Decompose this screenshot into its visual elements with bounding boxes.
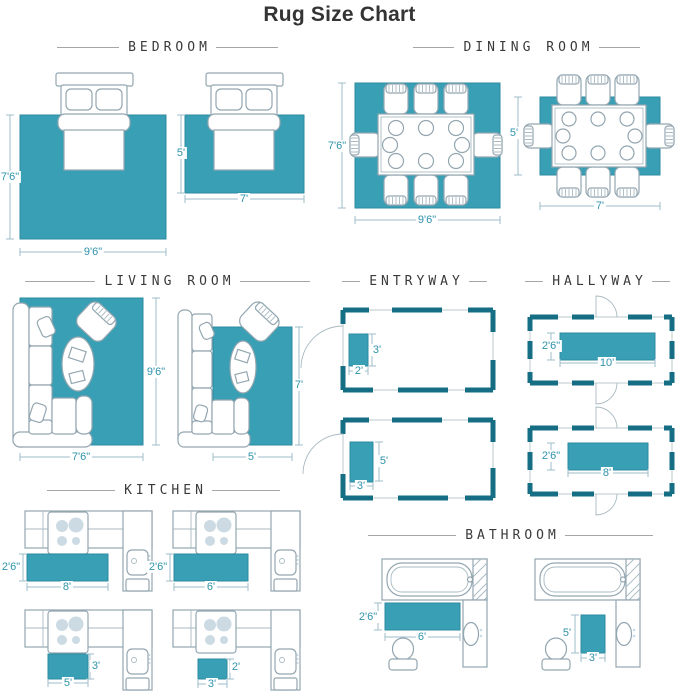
bedroom-rug1-width-label: 9'6" (82, 246, 104, 258)
dining-chair-icon (586, 167, 610, 197)
bedroom-rug1-height-label: 7'6" (0, 171, 21, 183)
rug (27, 554, 108, 581)
kitchen-rug3-width-label: 5' (62, 677, 74, 689)
entryway-rug2-width-label: 3' (355, 480, 367, 492)
hallway-rug1-height-label: 2'6" (540, 340, 562, 352)
rug (174, 554, 248, 581)
kitchen-rug4-width-label: 3' (206, 678, 218, 690)
dining-rug2-height-label: 5' (508, 127, 520, 139)
hallway-rug1-width-label: 10' (598, 357, 616, 369)
dining-room-diagram (338, 75, 674, 224)
rug (48, 654, 88, 679)
dining-chair-icon (444, 84, 468, 114)
coffee-table (230, 341, 256, 393)
bathroom-rug1-height-label: 2'6" (357, 611, 379, 623)
rug (568, 443, 648, 470)
kitchen-rug3-height-label: 3' (90, 660, 102, 672)
dining-chair-icon (384, 175, 408, 205)
dining-chair-icon (384, 84, 408, 114)
living-room-diagram (13, 298, 303, 461)
dining-rug1-width-label: 9'6" (416, 214, 438, 226)
kitchen-rug1-height-label: 2'6" (0, 561, 22, 573)
dining-chair-icon (615, 167, 639, 197)
dining-chair-icon (472, 133, 502, 157)
hallway-rug2-width-label: 8' (601, 467, 613, 479)
dining-rug1-height-label: 7'6" (326, 140, 348, 152)
rug (350, 442, 373, 482)
door-swing (596, 296, 617, 317)
dining-chair-icon (414, 84, 438, 114)
living-rug2-width-label: 5' (246, 451, 258, 463)
entryway-rug2-height-label: 5' (378, 455, 390, 467)
dining-chair-icon (414, 175, 438, 205)
door-swing (303, 434, 343, 474)
hallway-diagram (530, 296, 672, 515)
rug (349, 334, 368, 366)
bedroom-rug2-width-label: 7' (238, 193, 250, 205)
bathroom-diagram (374, 559, 640, 670)
dining-chair-icon (350, 133, 380, 157)
entryway-rug1-width-label: 2' (353, 365, 365, 377)
door-swing (596, 494, 617, 515)
dining-chair-icon (644, 124, 674, 148)
dining-rug2-width-label: 7' (594, 200, 606, 212)
bathroom-rug2-height-label: 5' (561, 627, 573, 639)
hallway-rug2-height-label: 2'6" (540, 450, 562, 462)
bathroom-rug2-width-label: 3' (587, 652, 599, 664)
dining-chair-icon (557, 167, 581, 197)
entryway-rug1-height-label: 3' (371, 344, 383, 356)
rug (581, 615, 605, 653)
living-rug2-height-label: 7' (293, 379, 305, 391)
bed-icon (56, 73, 133, 170)
bedroom-diagram (6, 73, 304, 256)
dining-chair-icon (586, 75, 610, 105)
living-rug1-height-label: 9'6" (145, 366, 167, 378)
kitchen-counter-icon (173, 610, 300, 690)
kitchen-rug2-width-label: 6' (205, 581, 217, 593)
rug-diagrams (0, 0, 679, 692)
living-rug1-width-label: 7'6" (70, 451, 92, 463)
kitchen-diagram (19, 511, 300, 690)
dining-chair-icon (557, 75, 581, 105)
rug-size-chart: Rug Size Chart BEDROOM DINING ROOM LIVIN… (0, 0, 679, 692)
kitchen-rug4-height-label: 2' (230, 661, 242, 673)
dining-chair-icon (615, 75, 639, 105)
entryway-diagram (301, 310, 493, 498)
rug (560, 333, 655, 360)
bedroom-rug2-height-label: 5' (175, 147, 187, 159)
dining-chair-icon (524, 124, 554, 148)
kitchen-rug1-width-label: 8' (61, 581, 73, 593)
bed-icon (206, 73, 283, 170)
door-swing (596, 383, 617, 404)
dining-chair-icon (444, 175, 468, 205)
coffee-table (62, 337, 94, 391)
rug (385, 603, 460, 630)
door-swing (596, 407, 617, 428)
bathroom-rug1-width-label: 6' (416, 631, 428, 643)
kitchen-rug2-height-label: 2'6" (147, 561, 169, 573)
door-swing (301, 326, 343, 368)
rug (198, 659, 227, 679)
